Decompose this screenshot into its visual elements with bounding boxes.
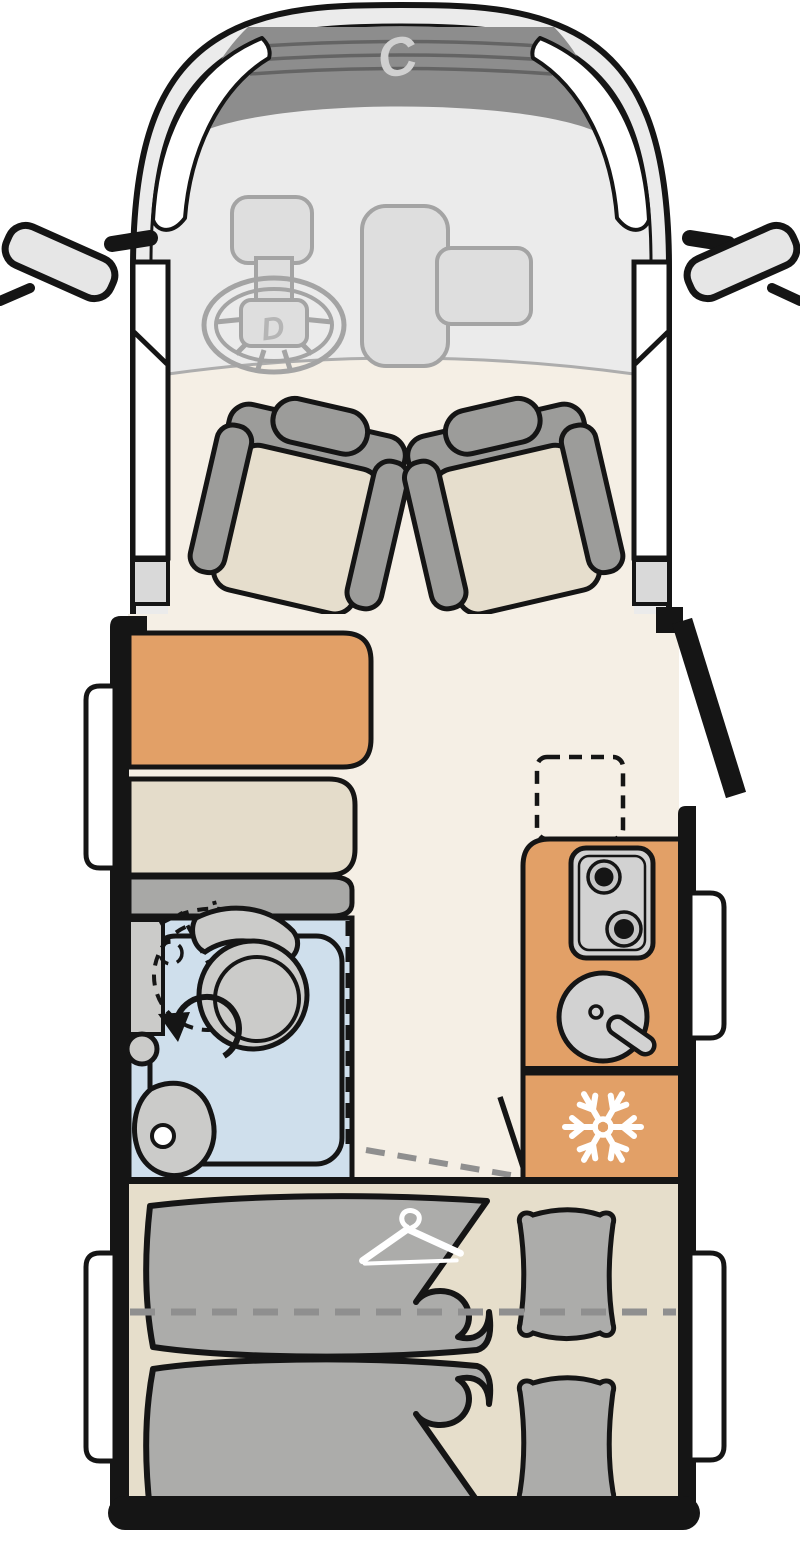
entry-door-open [682, 621, 736, 795]
bath-cabinet [129, 920, 163, 1034]
bathroom [127, 901, 352, 1181]
cab-door-right [634, 262, 669, 604]
glovebox-tray [437, 248, 531, 324]
window-bed-left [86, 1253, 115, 1461]
window-dinette-left [86, 686, 115, 868]
door-sill-right [634, 560, 669, 604]
floor-plan-canvas: C D [0, 0, 800, 1548]
fridge [523, 1073, 692, 1181]
mirror-left [0, 220, 150, 305]
toilet [193, 908, 307, 1049]
pillow-top [519, 1210, 613, 1339]
window-bed-right [690, 1253, 724, 1460]
pillow-bottom [519, 1378, 613, 1507]
window-kitchen-right [690, 893, 724, 1038]
bedroom-front-wall [129, 1177, 678, 1184]
cab-door-left [133, 262, 168, 604]
door-sill-left [133, 560, 168, 604]
hob [571, 848, 653, 958]
shower-control [127, 1034, 157, 1064]
cab: C D [0, 5, 800, 634]
bedroom [129, 1177, 678, 1520]
steering-column [232, 197, 312, 263]
camper-floor-plan: C D [0, 0, 800, 1548]
mirror-right [681, 220, 800, 305]
bench-seat [129, 633, 371, 767]
dinette-table [129, 779, 355, 875]
washbasin [135, 1083, 215, 1175]
wall-rear [108, 1496, 700, 1530]
